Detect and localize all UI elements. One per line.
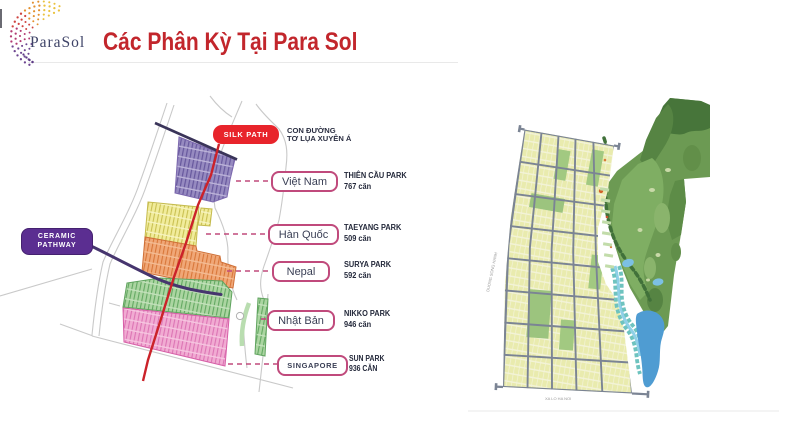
svg-text:XA LO HA NOI: XA LO HA NOI [545,396,571,401]
svg-text:DUONG SONG HANH: DUONG SONG HANH [485,252,498,292]
